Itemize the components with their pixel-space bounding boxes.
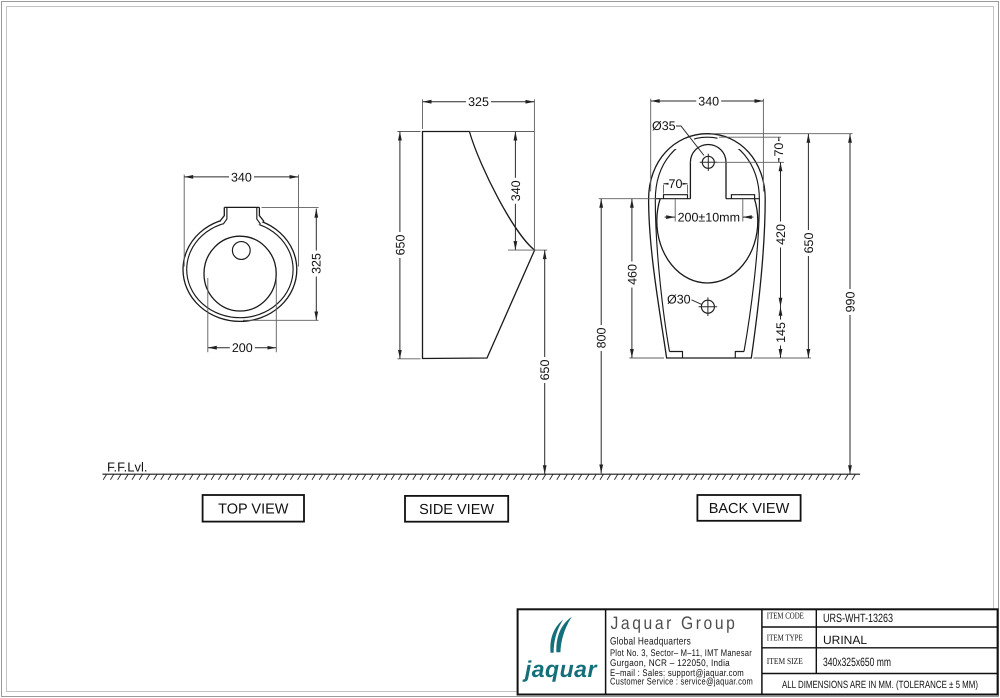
svg-text:325: 325 — [310, 253, 324, 274]
svg-text:650: 650 — [802, 233, 816, 254]
svg-text:340: 340 — [698, 94, 719, 108]
svg-text:SIDE VIEW: SIDE VIEW — [419, 502, 494, 518]
svg-text:ITEM TYPE: ITEM TYPE — [767, 633, 803, 643]
svg-text:325: 325 — [468, 95, 489, 109]
svg-text:70: 70 — [669, 177, 683, 191]
svg-text:650: 650 — [393, 235, 407, 256]
svg-text:420: 420 — [774, 224, 788, 245]
svg-text:650: 650 — [538, 360, 552, 381]
svg-text:URS-WHT-13263: URS-WHT-13263 — [823, 611, 893, 625]
svg-text:jaquar: jaquar — [522, 656, 598, 682]
svg-text:ITEM CODE: ITEM CODE — [767, 611, 804, 621]
svg-text:BACK VIEW: BACK VIEW — [709, 501, 790, 517]
svg-text:Jaquar Group: Jaquar Group — [611, 613, 738, 633]
svg-text:200±10mm: 200±10mm — [678, 210, 740, 224]
svg-text:F.F.Lvl.: F.F.Lvl. — [107, 460, 147, 475]
svg-text:Ø35: Ø35 — [652, 119, 676, 133]
svg-text:340: 340 — [509, 180, 523, 201]
svg-text:URINAL: URINAL — [823, 633, 867, 647]
svg-text:460: 460 — [625, 264, 639, 285]
svg-text:340: 340 — [231, 170, 252, 184]
svg-text:200: 200 — [232, 341, 253, 355]
svg-text:Customer Service : service@jaq: Customer Service : service@jaquar.com — [610, 676, 753, 687]
svg-text:Global Headquarters: Global Headquarters — [610, 635, 691, 647]
svg-text:ALL DIMENSIONS ARE IN MM. (TOL: ALL DIMENSIONS ARE IN MM. (TOLERANCE ± 5… — [782, 679, 978, 691]
svg-text:70: 70 — [772, 143, 786, 157]
svg-text:800: 800 — [595, 328, 609, 349]
svg-text:340x325x650 mm: 340x325x650 mm — [823, 655, 891, 669]
svg-text:TOP VIEW: TOP VIEW — [218, 501, 289, 517]
svg-text:Ø30: Ø30 — [667, 292, 691, 306]
svg-text:ITEM SIZE: ITEM SIZE — [767, 656, 803, 666]
svg-text:990: 990 — [843, 292, 857, 313]
svg-text:145: 145 — [774, 322, 788, 343]
